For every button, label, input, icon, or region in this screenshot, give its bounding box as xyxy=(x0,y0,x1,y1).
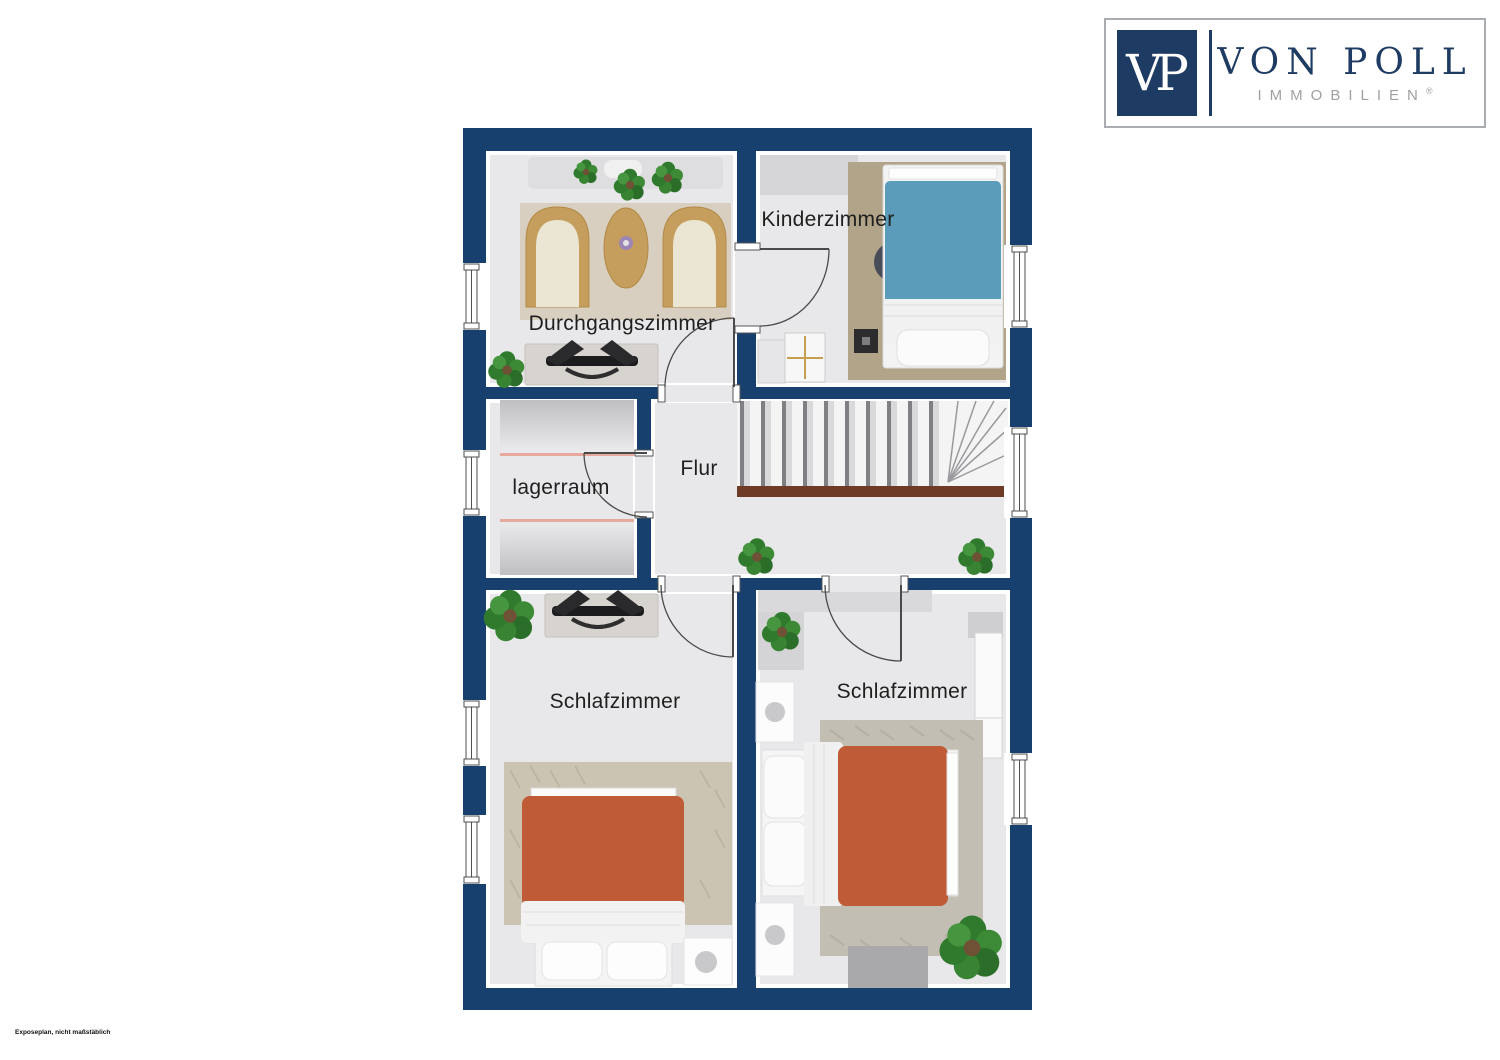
room-label-schlafzimmer-rechts: Schlafzimmer xyxy=(837,680,968,704)
nightstand xyxy=(684,938,732,985)
closet xyxy=(760,155,858,195)
scale-disclaimer: Exposeplan, nicht maßstäblich xyxy=(15,1029,110,1036)
logo-vp-monogram: VP xyxy=(1117,30,1197,116)
room-label-durchgangszimmer: Durchgangszimmer xyxy=(529,312,716,336)
double-bed xyxy=(521,788,685,986)
storage-shelf xyxy=(500,519,634,575)
double-bed xyxy=(762,742,958,906)
armchair xyxy=(663,207,726,307)
storage-shelf xyxy=(500,400,634,455)
window xyxy=(1004,245,1038,328)
staircase xyxy=(737,401,1008,497)
floor-mat xyxy=(848,946,928,988)
room-label-flur: Flur xyxy=(680,457,717,481)
window xyxy=(456,263,490,330)
window xyxy=(1004,427,1038,518)
floor-plan-drawing xyxy=(0,0,1500,1060)
cabinet xyxy=(758,340,785,383)
stair-rail xyxy=(737,486,1007,497)
room-label-lagerraum: lagerraum xyxy=(512,476,609,500)
company-logo: VP VON POLL IMMOBILIEN® xyxy=(1104,18,1486,128)
single-bed xyxy=(883,165,1003,368)
room-label-kinderzimmer: Kinderzimmer xyxy=(761,208,894,232)
room-label-schlafzimmer-links: Schlafzimmer xyxy=(550,690,681,714)
nightstand xyxy=(756,903,794,976)
logo-subbrand-word: IMMOBILIEN xyxy=(1258,87,1426,104)
logo-text-block: VON POLL IMMOBILIEN® xyxy=(1212,42,1484,104)
shelf xyxy=(785,333,825,382)
floorplan-page: Durchgangszimmer Kinderzimmer lagerraum … xyxy=(0,0,1500,1060)
wardrobe xyxy=(975,633,1002,718)
closet xyxy=(758,590,932,612)
window xyxy=(456,700,490,766)
window xyxy=(1004,753,1038,825)
armchair xyxy=(526,207,589,307)
logo-subbrand-text: IMMOBILIEN® xyxy=(1212,86,1478,104)
registered-mark: ® xyxy=(1426,86,1433,96)
logo-brand-text: VON POLL xyxy=(1212,42,1478,83)
nightstand xyxy=(756,682,794,742)
window xyxy=(456,450,490,516)
window xyxy=(456,815,490,884)
